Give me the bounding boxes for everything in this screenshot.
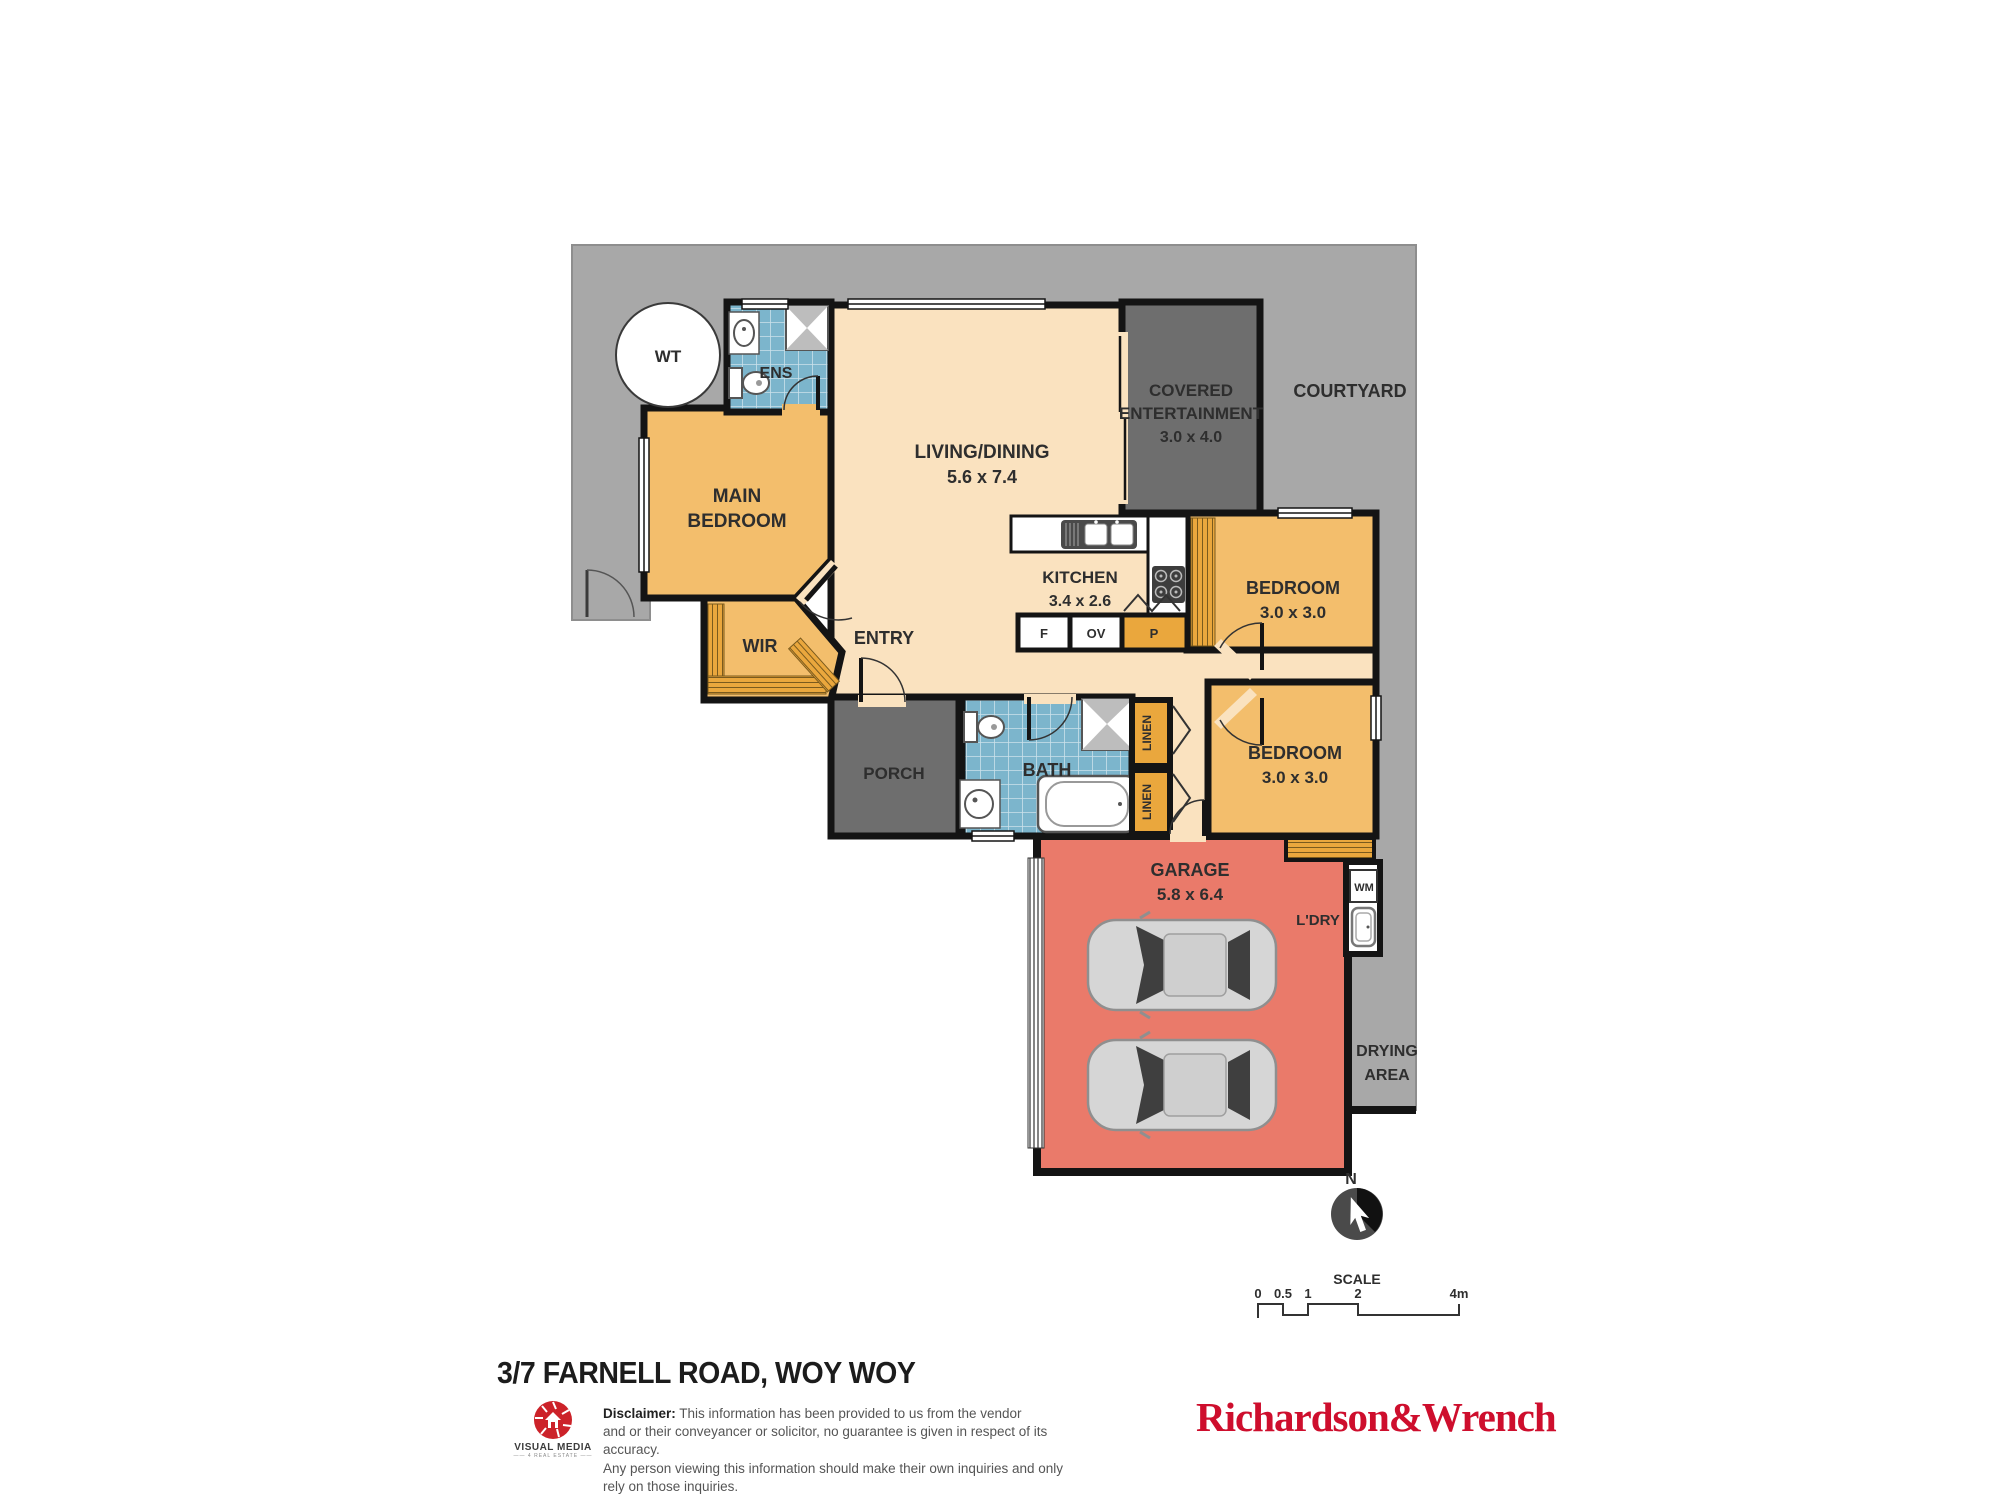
bath-basin-icon [965,790,993,818]
label-fridge: F [1040,626,1048,641]
floor-plan: WT ENS MAIN BEDROOM LIVING/DINING 5.6 x … [0,0,2000,1500]
label-bedroom1-dim: 3.0 x 3.0 [1260,603,1326,622]
garage-door [1028,858,1044,1148]
visual-media-name: VISUAL MEDIA [498,1442,608,1453]
label-bedroom2: BEDROOM [1248,743,1342,763]
label-north: N [1345,1171,1357,1188]
label-oven: OV [1087,626,1106,641]
label-bath: BATH [1023,760,1072,780]
label-garage: GARAGE [1150,860,1229,880]
label-laundry: L'DRY [1296,912,1340,929]
label-pantry: P [1150,626,1159,641]
disclaimer-line1: This information has been provided to us… [676,1406,1022,1421]
north-arrow-icon [1331,1188,1383,1240]
label-linen1: LINEN [1140,715,1154,751]
scale-tick: 4m [1450,1286,1469,1301]
label-wir: WIR [743,636,778,656]
visual-media-tagline: 4 REAL ESTATE [498,1453,608,1459]
disclaimer-line2: and or their conveyancer or solicitor, n… [603,1424,1047,1457]
bedroom2-wardrobe-icon [1286,838,1374,860]
label-wm: WM [1354,882,1374,894]
bedroom1-wardrobe-icon [1191,518,1215,646]
floorplan-page: { "colors": { "courtyard_gray": "#a8a8a8… [0,0,2000,1500]
label-living: LIVING/DINING [914,442,1049,463]
label-covered-dim: 3.0 x 4.0 [1160,429,1222,446]
label-wt: WT [655,347,682,366]
scale-tick: 0 [1254,1286,1261,1301]
scale-tick: 0.5 [1274,1286,1292,1301]
wir-wardrobe-icon [708,676,826,694]
label-entry: ENTRY [854,628,914,648]
label-garage-dim: 5.8 x 6.4 [1157,885,1224,904]
label-linen2: LINEN [1140,784,1154,820]
label-covered: COVERED [1149,381,1233,400]
page-title: 3/7 FARNELL ROAD, WOY WOY [497,1355,915,1391]
label-bedroom2-dim: 3.0 x 3.0 [1262,768,1328,787]
ens-toilet-icon [729,368,742,398]
car-icon [1088,912,1276,1018]
scale-tick: 1 [1304,1286,1311,1301]
scale-tick: 2 [1354,1286,1361,1301]
label-kitchen: KITCHEN [1042,568,1118,587]
visual-media-logo-icon [533,1400,573,1440]
agency-logo: Richardson&Wrench [1196,1393,1556,1441]
label-drying: AREA [1364,1067,1410,1084]
label-ens: ENS [760,365,793,382]
label-main-bedroom: MAIN [713,486,762,507]
label-covered: ENTERTAINMENT [1119,404,1264,423]
label-living-dim: 5.6 x 7.4 [947,467,1017,487]
disclaimer-line3: Any person viewing this information shou… [603,1461,1063,1494]
label-main-bedroom: BEDROOM [687,511,786,532]
disclaimer-text: Disclaimer: This information has been pr… [603,1405,1073,1496]
label-scale: SCALE [1333,1271,1380,1287]
footer: 3/7 FARNELL ROAD, WOY WOY VISUAL MEDIA 4… [0,1345,2000,1500]
label-porch: PORCH [863,764,924,783]
label-courtyard: COURTYARD [1293,381,1406,401]
disclaimer-heading: Disclaimer: [603,1406,676,1421]
label-bedroom1: BEDROOM [1246,578,1340,598]
visual-media-logo: VISUAL MEDIA 4 REAL ESTATE [498,1400,608,1459]
bath-toilet-icon [964,712,977,742]
scale-bar [1258,1304,1459,1318]
ens-basin-icon [734,320,754,346]
label-kitchen-dim: 3.4 x 2.6 [1049,593,1111,610]
car-icon [1088,1032,1276,1138]
label-drying: DRYING [1356,1043,1418,1060]
